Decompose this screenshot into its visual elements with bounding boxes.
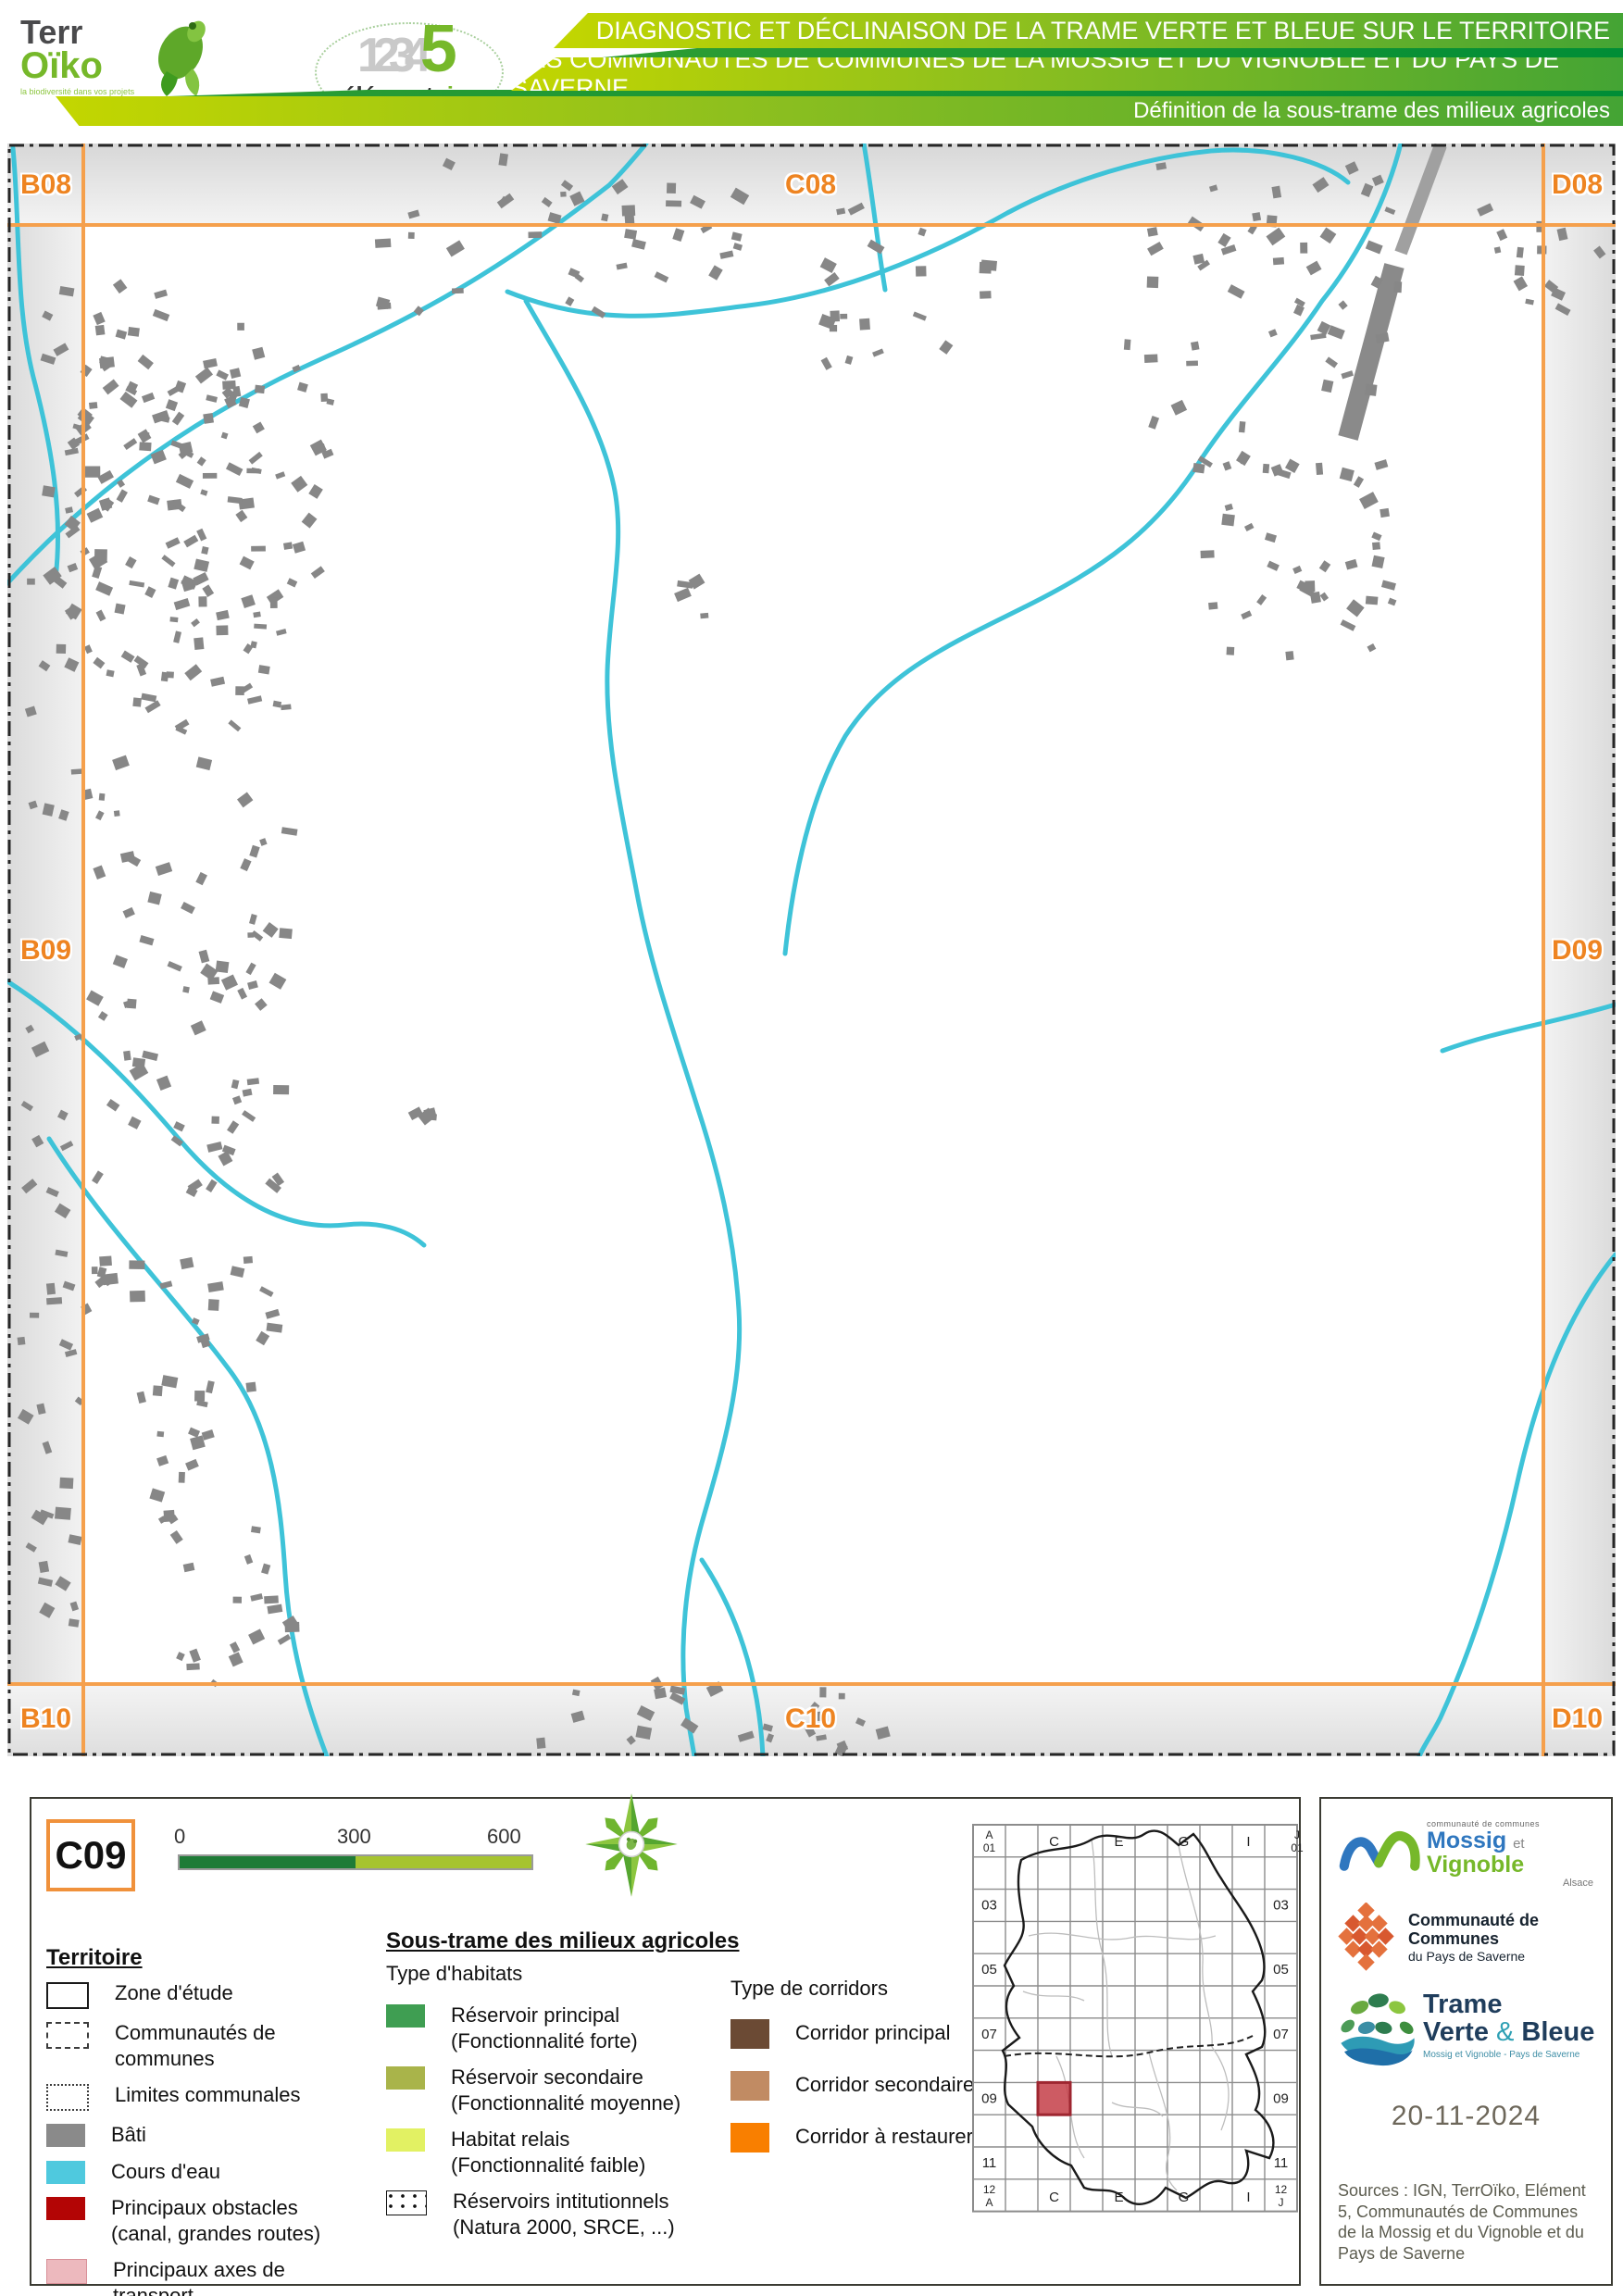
map-plate-page: Terr Oïko la biodiversité dans vos proje… [0,0,1623,2296]
habitat-relais-swatch [386,2128,425,2152]
corridor-restaurer-swatch [730,2123,769,2152]
svg-text:05: 05 [981,1962,997,1978]
svg-text:05: 05 [1273,1962,1289,1978]
grid-label-D10: D10 [1552,1703,1603,1735]
svg-text:01: 01 [1291,1841,1304,1854]
svg-text:12: 12 [1275,2183,1288,2196]
subtitle-ribbon: Définition de la sous-trame des milieux … [56,96,1623,126]
terroiko-logo: Terr Oïko la biodiversité dans vos proje… [20,17,298,96]
svg-text:01: 01 [983,1841,996,1854]
svg-text:03: 03 [981,1898,997,1914]
saverne-name-line1: Communauté de Communes [1408,1912,1601,1949]
svg-text:E: E [1114,1834,1123,1850]
compass-rose-icon [583,1791,680,1899]
legend-item-obstacles: Principaux obstacles(canal, grandes rout… [46,2195,361,2246]
legend-item-axes-transport: Principaux axes de transport [46,2257,361,2296]
svg-text:A: A [985,1828,993,1841]
mossig-name: Mossig et Vignoble [1427,1828,1603,1878]
svg-text:09: 09 [1273,2090,1289,2106]
svg-text:03: 03 [1273,1898,1289,1914]
svg-text:07: 07 [1273,2027,1289,2042]
territoire-title: Territoire [46,1945,143,1970]
element5-numbers: 12345 [357,11,457,87]
svg-text:11: 11 [1274,2155,1289,2171]
locator-grid-map: A01J01CEGI0303050507070909111112A12JCEGI [968,1819,1304,2219]
svg-text:A: A [985,2196,993,2209]
saverne-name-line2: du Pays de Saverne [1408,1949,1601,1964]
scale-tick-0: 0 [174,1825,185,1849]
bati-swatch [46,2124,85,2147]
legend-item-cours-eau: Cours d'eau [46,2159,361,2185]
legend-corridors: Type de corridors Corridor principal Cor… [730,1977,1008,2173]
scale-bar-graphic [178,1854,533,1870]
legend-territoire: Territoire Zone d'étude Communautés deco… [46,1945,361,2296]
legend-item-corridor-restaurer: Corridor à restaurer [730,2121,1008,2152]
svg-text:I: I [1246,1834,1250,1850]
legend-item-reservoirs-institutionnels: Réservoirs intitutionnels(Natura 2000, S… [386,2189,812,2240]
grid-label-B10: B10 [20,1703,71,1735]
tvb-subtitle: Mossig et Vignoble - Pays de Saverne [1423,2050,1594,2060]
corridors-title: Type de corridors [730,1977,1008,2001]
frog-icon [139,11,222,104]
current-sheet-highlight [1038,2082,1070,2115]
trame-verte-bleue-logo: Trame Verte & Bleue Mossig et Vignoble -… [1334,1989,1603,2072]
svg-text:G: G [1179,1834,1190,1850]
legend-item-corridor-principal: Corridor principal [730,2017,1008,2049]
grid-label-D09: D09 [1552,935,1603,967]
cours-eau-swatch [46,2161,85,2184]
reservoir-secondaire-swatch [386,2066,425,2090]
svg-text:J: J [1294,1828,1300,1841]
title-ribbon-line2: DES COMMUNAUTÉS DE COMMUNES DE LA MOSSIG… [511,57,1623,91]
communautes-swatch [46,2022,89,2049]
svg-text:09: 09 [981,2090,997,2106]
svg-text:12: 12 [983,2183,996,2196]
axes-transport-swatch [46,2259,87,2284]
map-canvas [7,143,1616,1756]
sources-text: Sources : IGN, TerrOïko, Elément 5, Comm… [1338,2180,1599,2264]
legend-item-zone-etude: Zone d'étude [46,1980,361,2009]
grid-label-C08: C08 [785,169,836,201]
obstacles-swatch [46,2197,85,2220]
mossig-region: Alsace [1427,1878,1593,1889]
corridor-secondaire-swatch [730,2071,769,2101]
tvb-name-line1: Trame [1423,1990,1594,2018]
grid-label-B08: B08 [20,169,71,201]
zone-etude-swatch [46,1982,89,2009]
saverne-mosaic-icon [1336,1903,1397,1973]
svg-text:11: 11 [982,2155,997,2171]
soustrame-title: Sous-trame des milieux agricoles [386,1928,739,1953]
title-ribbon-line1: DIAGNOSTIC ET DÉCLINAISON DE LA TRAME VE… [554,13,1623,48]
legend-item-limites: Limites communales [46,2082,361,2111]
svg-text:C: C [1049,1834,1059,1850]
legend-item-corridor-secondaire: Corridor secondaire [730,2069,1008,2101]
tvb-paw-icon [1334,1989,1419,2074]
credits-panel: communauté de communes Mossig et Vignobl… [1319,1797,1613,2286]
pays-de-saverne-logo: Communauté de Communes du Pays de Savern… [1336,1903,1601,1969]
current-cell-id: C09 [46,1819,135,1891]
svg-text:E: E [1114,2190,1123,2205]
svg-text:J: J [1279,2196,1284,2209]
svg-text:07: 07 [981,2027,997,2042]
svg-text:G: G [1179,2190,1190,2205]
locator-grid-lines [973,1825,1297,2212]
mossig-wave-icon [1338,1819,1421,1878]
corridor-principal-swatch [730,2019,769,2049]
legend-panel: C09 0 300 600 m Territo [30,1797,1301,2286]
grid-label-B09: B09 [20,935,71,967]
grid-label-D08: D08 [1552,169,1603,201]
grid-label-C10: C10 [785,1703,836,1735]
main-map: B08 C08 D08 B09 D09 B10 C10 D10 [7,143,1616,1756]
scale-tick-300: 300 [337,1825,371,1849]
legend-item-communautes: Communautés decommunes [46,2020,361,2071]
reservoir-principal-swatch [386,2004,425,2028]
map-date: 20-11-2024 [1321,2101,1611,2132]
svg-text:C: C [1049,2190,1059,2205]
mossig-vignoble-logo: communauté de communes Mossig et Vignobl… [1338,1819,1597,1880]
limites-swatch [46,2084,89,2111]
svg-text:I: I [1246,2190,1250,2205]
reservoirs-institutionnels-swatch [386,2190,427,2215]
tvb-name-line2: Verte & Bleue [1423,2018,1594,2046]
legend-item-bati: Bâti [46,2122,361,2148]
